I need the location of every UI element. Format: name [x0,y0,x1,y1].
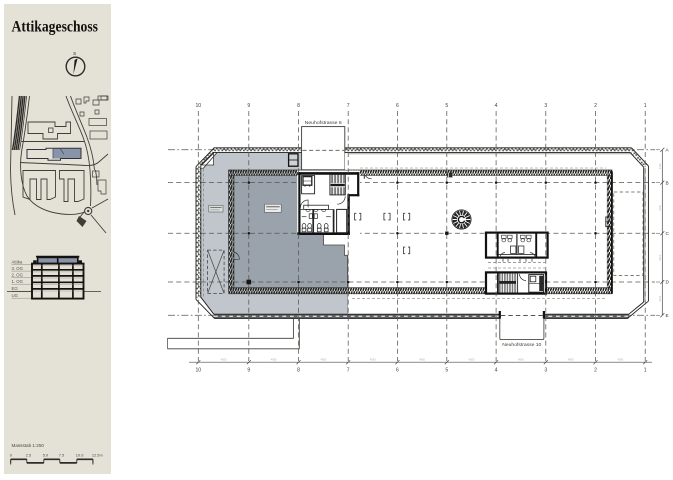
svg-text:Attika: Attika [12,259,23,264]
svg-text:4: 4 [495,368,498,374]
svg-text:8: 8 [297,368,300,374]
svg-text:3100: 3100 [658,204,662,210]
svg-text:7: 7 [347,368,350,374]
svg-text:5: 5 [445,368,448,374]
svg-text:6: 6 [396,103,399,109]
svg-text:Attikageschoss: Attikageschoss [12,19,99,36]
svg-text:2.5: 2.5 [26,453,31,458]
svg-text:4950: 4950 [221,358,227,362]
svg-text:2. OG: 2. OG [12,272,24,277]
svg-text:7: 7 [347,103,350,109]
svg-text:12.5m: 12.5m [92,453,103,458]
svg-text:Neuhofstrasse 10: Neuhofstrasse 10 [502,342,542,347]
svg-text:10.0: 10.0 [76,453,84,458]
svg-text:7.5: 7.5 [59,453,64,458]
svg-text:8: 8 [297,103,300,109]
svg-text:10: 10 [195,368,201,374]
svg-text:4950: 4950 [617,358,623,362]
svg-text:4950: 4950 [320,358,326,362]
svg-text:9: 9 [247,103,250,109]
svg-text:1: 1 [644,103,647,109]
svg-text:3: 3 [544,368,547,374]
svg-text:4950: 4950 [469,358,475,362]
svg-text:3100: 3100 [658,254,662,260]
svg-text:Neuhofstrasse 6: Neuhofstrasse 6 [305,120,343,125]
svg-text:9: 9 [247,368,250,374]
svg-text:3100: 3100 [658,163,662,169]
svg-text:2: 2 [594,368,597,374]
svg-text:10: 10 [195,103,201,109]
svg-text:EG: EG [12,286,19,291]
svg-text:5.0: 5.0 [43,453,49,458]
svg-text:4: 4 [495,103,498,109]
svg-text:5: 5 [445,103,448,109]
svg-text:s: s [73,51,76,57]
svg-text:6: 6 [396,368,399,374]
svg-text:Massstab 1:250: Massstab 1:250 [12,443,45,448]
svg-text:4950: 4950 [419,358,425,362]
svg-text:B: B [666,180,669,185]
svg-text:UG: UG [12,293,19,298]
svg-text:4950: 4950 [518,358,524,362]
svg-text:1: 1 [644,368,647,374]
svg-text:3: 3 [544,103,547,109]
svg-text:3. OG: 3. OG [12,266,24,271]
svg-text:4950: 4950 [568,358,574,362]
svg-text:2: 2 [594,103,597,109]
svg-text:E: E [666,313,669,318]
svg-text:3100: 3100 [658,295,662,301]
svg-text:4950: 4950 [271,358,277,362]
svg-text:1. OG: 1. OG [12,279,24,284]
svg-text:4950: 4950 [370,358,376,362]
